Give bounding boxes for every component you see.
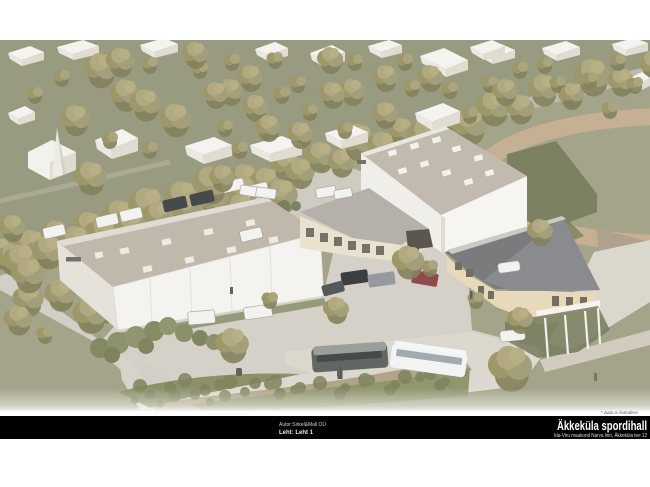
svg-text:Autor:Sirkel&Mall OÜ: Autor:Sirkel&Mall OÜ [279,421,326,428]
svg-text:Äkkeküla spordihall: Äkkeküla spordihall [557,418,647,433]
svg-text:Ida-Viru maakond Narva linn, Ä: Ida-Viru maakond Narva linn, Äkkeküla te… [554,432,647,439]
svg-text:Leht: Leht 1: Leht: Leht 1 [279,430,314,436]
svg-text:* Vaade on illustratiivne: * Vaade on illustratiivne [601,410,638,415]
